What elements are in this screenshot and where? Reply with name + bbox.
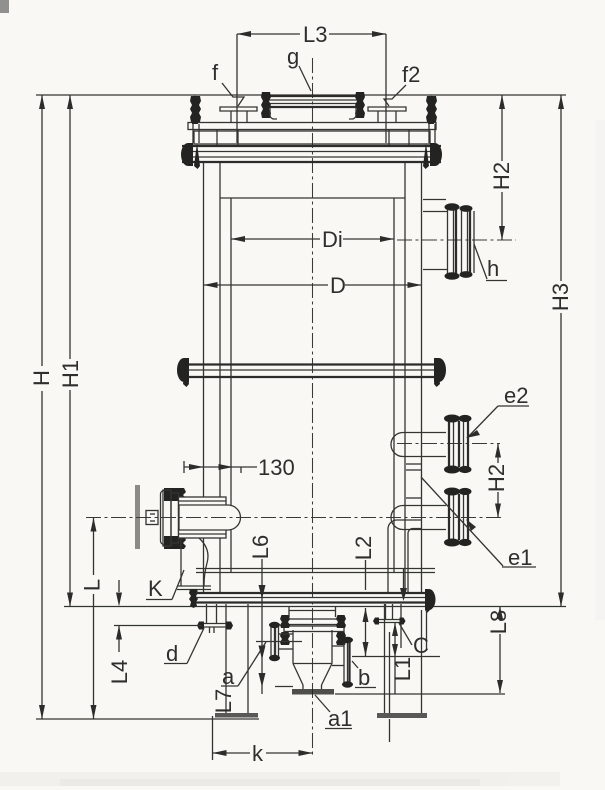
svg-text:H2: H2 [489,162,514,190]
svg-text:f2: f2 [402,62,420,87]
svg-text:130: 130 [258,455,295,480]
svg-text:L2: L2 [351,536,376,560]
svg-text:L4: L4 [107,660,132,684]
svg-text:L3: L3 [303,22,327,47]
svg-text:K: K [148,576,163,601]
svg-text:H2: H2 [484,464,509,492]
svg-text:L1: L1 [390,657,415,681]
svg-text:L8: L8 [486,610,511,634]
svg-text:f: f [212,60,219,85]
svg-text:h: h [487,256,499,281]
svg-text:D: D [330,273,346,298]
svg-text:e1: e1 [508,545,532,570]
svg-text:C: C [413,633,429,658]
svg-text:k: k [252,741,264,766]
svg-text:H: H [29,370,54,386]
svg-text:b: b [358,665,370,690]
svg-text:H3: H3 [548,283,573,311]
svg-text:Di: Di [322,227,343,252]
svg-text:d: d [166,641,178,666]
svg-text:L7: L7 [211,689,236,713]
svg-text:e2: e2 [504,383,528,408]
svg-text:g: g [287,44,299,69]
svg-text:L: L [79,579,104,591]
svg-text:a: a [222,664,235,689]
svg-text:L6: L6 [248,535,273,559]
svg-text:H1: H1 [58,360,83,388]
svg-text:a1: a1 [328,706,352,731]
